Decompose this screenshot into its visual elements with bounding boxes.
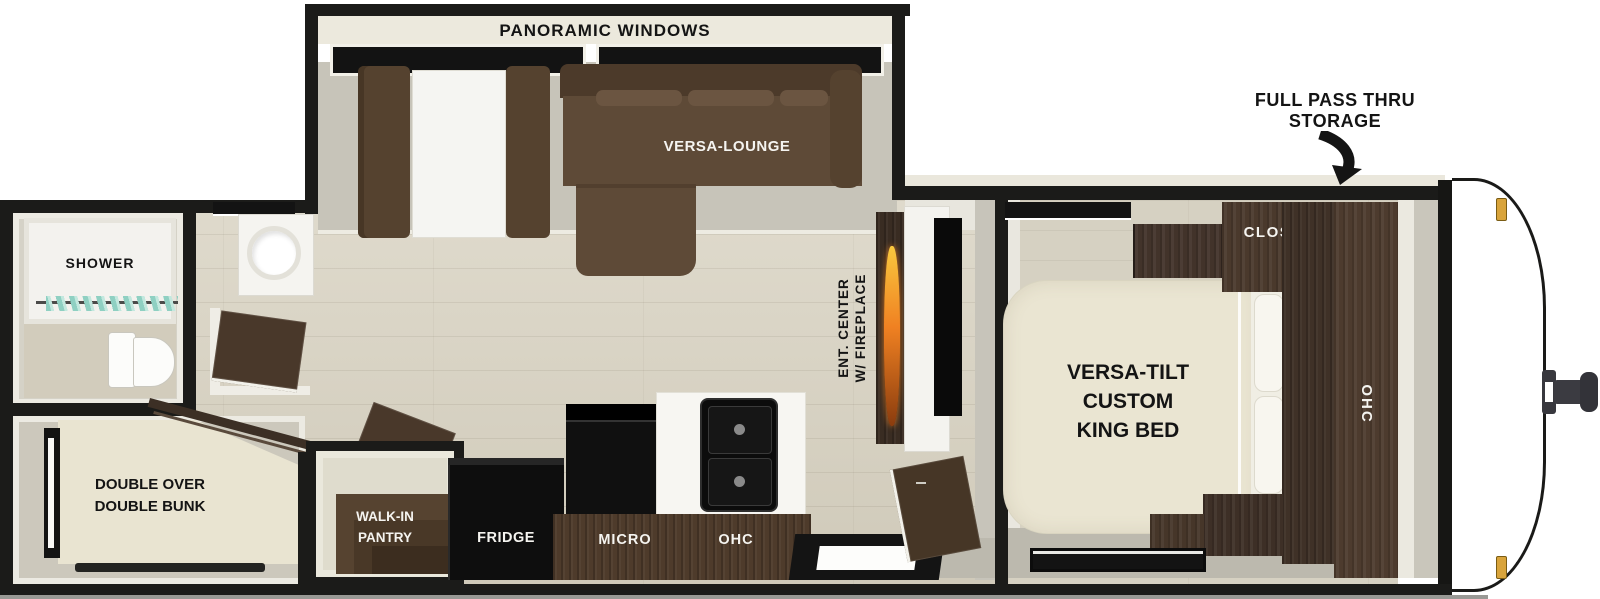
versa-lounge-text: VERSA-LOUNGE xyxy=(664,138,791,155)
bathroom-door xyxy=(211,310,306,392)
ohc-kitchen-label: OHC xyxy=(688,532,784,548)
marker-light-bottom xyxy=(1496,556,1507,579)
sofa-cushion xyxy=(596,90,682,106)
full-pass-thru-line1: FULL PASS THRU xyxy=(1240,90,1430,111)
bathroom-right-wall xyxy=(183,213,196,405)
bed-seam xyxy=(1238,284,1241,528)
outer-wall-cream-strip xyxy=(905,175,1445,186)
shower-label: SHOWER xyxy=(24,255,176,271)
slideout-wall-left xyxy=(305,4,318,214)
bedroom-front-wall-face xyxy=(1398,200,1414,578)
full-pass-thru-label: FULL PASS THRU STORAGE xyxy=(1240,90,1430,132)
king-bed-line2: CUSTOM xyxy=(1028,387,1228,416)
ent-center-line2: W/ FIREPLACE xyxy=(852,243,869,413)
ent-center-label: ENT. CENTER W/ FIREPLACE xyxy=(835,243,869,413)
sofa-chaise xyxy=(576,184,696,276)
bedroom-window-bottom xyxy=(1030,548,1206,572)
sofa-cushion xyxy=(688,90,774,106)
slideout-wall-top xyxy=(305,4,910,16)
bunk-label: DOUBLE OVER DOUBLE BUNK xyxy=(40,474,260,518)
living-divider-face xyxy=(975,200,995,580)
front-nose-cap xyxy=(1452,178,1546,592)
pantry-step xyxy=(372,546,448,574)
ohc-kitchen-text: OHC xyxy=(718,532,753,548)
pillow xyxy=(1254,294,1284,392)
wardrobe-column xyxy=(1282,202,1334,564)
micro-text: MICRO xyxy=(598,532,651,548)
pantry-label: WALK-IN PANTRY xyxy=(316,506,454,548)
fridge-label: FRIDGE xyxy=(448,530,564,546)
shower-text: SHOWER xyxy=(66,255,135,271)
fireplace-flame xyxy=(884,246,900,426)
ohc-bedroom-label: OHC xyxy=(1357,374,1375,434)
fridge xyxy=(448,458,564,580)
panoramic-windows-label: PANORAMIC WINDOWS xyxy=(318,21,892,41)
bunk-label-line1: DOUBLE OVER xyxy=(40,474,260,496)
rear-wall xyxy=(0,200,13,592)
king-bed-line3: KING BED xyxy=(1028,416,1228,445)
overbed-cabinet xyxy=(1133,224,1223,278)
top-wall-front xyxy=(892,186,1452,200)
shower-curtain xyxy=(46,296,178,311)
slideout-wall-right xyxy=(892,4,905,200)
sink-drain xyxy=(734,476,745,487)
pass-thru-storage-bay xyxy=(1414,200,1438,578)
micro-label: MICRO xyxy=(560,532,690,548)
entry-door-handle xyxy=(916,482,926,484)
sofa-arm-right xyxy=(830,70,862,188)
versa-lounge-label: VERSA-LOUNGE xyxy=(627,138,827,155)
range xyxy=(566,404,656,518)
bedroom-foot-cabinet xyxy=(1203,494,1283,556)
pass-thru-arrow-icon xyxy=(1312,131,1364,185)
dinette-table xyxy=(412,70,506,238)
pillow xyxy=(1254,396,1284,494)
pantry-label-line1: WALK-IN xyxy=(316,506,454,527)
bedroom-window-top xyxy=(1005,202,1131,220)
king-bed-label: VERSA-TILT CUSTOM KING BED xyxy=(1028,358,1228,445)
tv-panel xyxy=(934,218,962,416)
entry-stepwell-tread xyxy=(816,546,917,570)
king-bed-line1: VERSA-TILT xyxy=(1028,358,1228,387)
ground-shadow xyxy=(0,595,1488,599)
bunk-edge-trim xyxy=(75,563,265,572)
floorplan-canvas: PANORAMIC WINDOWS VERSA-LOUNGE SHOWER xyxy=(0,0,1600,599)
dinette-seat-left xyxy=(358,66,410,238)
sofa-cushion xyxy=(780,90,828,106)
bunk-label-line2: DOUBLE BUNK xyxy=(40,496,260,518)
ohc-bedroom-text: OHC xyxy=(1358,384,1375,423)
toilet-tank xyxy=(108,332,136,388)
front-wall-trim xyxy=(1438,180,1452,590)
full-pass-thru-line2: STORAGE xyxy=(1240,111,1430,132)
marker-light-top xyxy=(1496,198,1507,221)
hitch-coupler-notch xyxy=(1545,382,1553,402)
sink-drain xyxy=(734,424,745,435)
ent-center-line1: ENT. CENTER xyxy=(835,243,852,413)
vanity-sink-basin xyxy=(247,226,301,280)
panoramic-windows-text: PANORAMIC WINDOWS xyxy=(499,21,710,40)
fridge-text: FRIDGE xyxy=(477,530,535,546)
hitch-tip xyxy=(1580,372,1598,412)
pantry-label-line2: PANTRY xyxy=(316,527,454,548)
dinette-seat-right xyxy=(506,66,550,238)
